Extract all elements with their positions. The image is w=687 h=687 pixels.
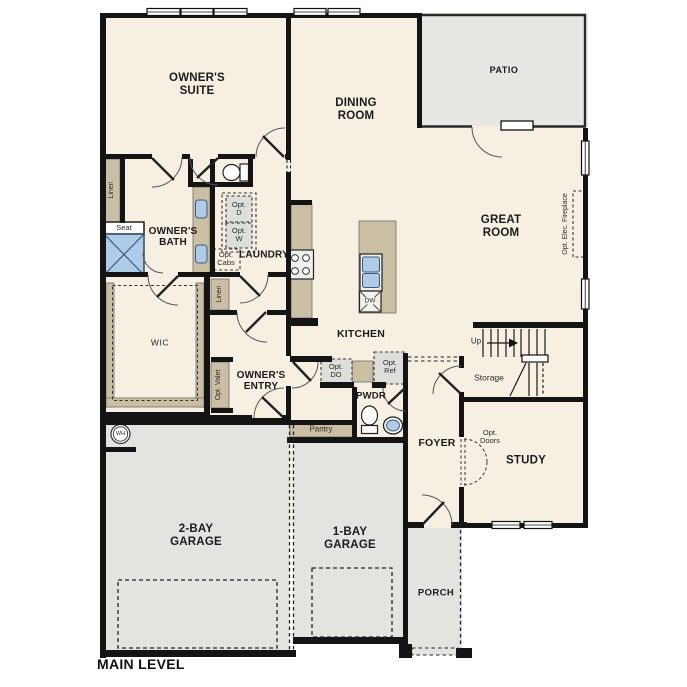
room-label-pantry: Pantry — [309, 426, 332, 435]
room-label-patio: PATIO — [490, 65, 519, 75]
annotation-opt-washer: Opt. W — [230, 227, 248, 244]
annotation-water-heater: WH — [116, 431, 125, 437]
room-label-wic: WIC — [151, 338, 169, 347]
room-label-pwdr: PWDR — [356, 392, 386, 403]
room-label-great-room: GREAT ROOM — [471, 214, 531, 240]
plan-title: MAIN LEVEL — [97, 656, 185, 672]
room-label-dining-room: DINING ROOM — [326, 97, 386, 123]
annotation-opt-cabs: Opt. Cabs — [215, 251, 237, 268]
annotation-linen-laundry: Linen — [216, 285, 224, 302]
room-label-1bay-garage: 1-BAY GARAGE — [314, 526, 386, 552]
room-label-porch: PORCH — [418, 589, 454, 600]
annotation-opt-valet: Opt. Valet — [215, 370, 223, 401]
room-label-storage: Storage — [474, 373, 504, 382]
annotation-stairs-up: Up — [471, 338, 481, 347]
annotation-opt-dryer: Opt. D — [230, 201, 248, 218]
annotation-opt-elec-fireplace: Opt. Elec. Fireplace — [562, 193, 570, 254]
annotation-opt-doors: Opt. Doors — [477, 429, 503, 446]
annotation-seat: Seat — [116, 224, 131, 232]
annotation-dishwasher: DW — [364, 297, 377, 304]
room-label-owners-bath: OWNER'S BATH — [140, 226, 206, 248]
annotation-linen-bath: Linen — [108, 181, 116, 198]
annotation-opt-refrigerator: Opt. Ref — [380, 359, 400, 376]
room-label-owners-entry: OWNER'S ENTRY — [228, 370, 294, 392]
room-label-laundry: LAUNDRY — [239, 249, 289, 260]
room-label-kitchen: KITCHEN — [337, 329, 385, 341]
room-label-2bay-garage: 2-BAY GARAGE — [160, 523, 232, 549]
annotation-opt-double-oven: Opt. DO — [326, 363, 346, 380]
floor-plan: OWNER'S SUITE DINING ROOM PATIO GREAT RO… — [0, 0, 687, 687]
room-label-study: STUDY — [506, 455, 546, 468]
room-label-owners-suite: OWNER'S SUITE — [164, 72, 230, 98]
room-label-foyer: FOYER — [418, 438, 455, 450]
